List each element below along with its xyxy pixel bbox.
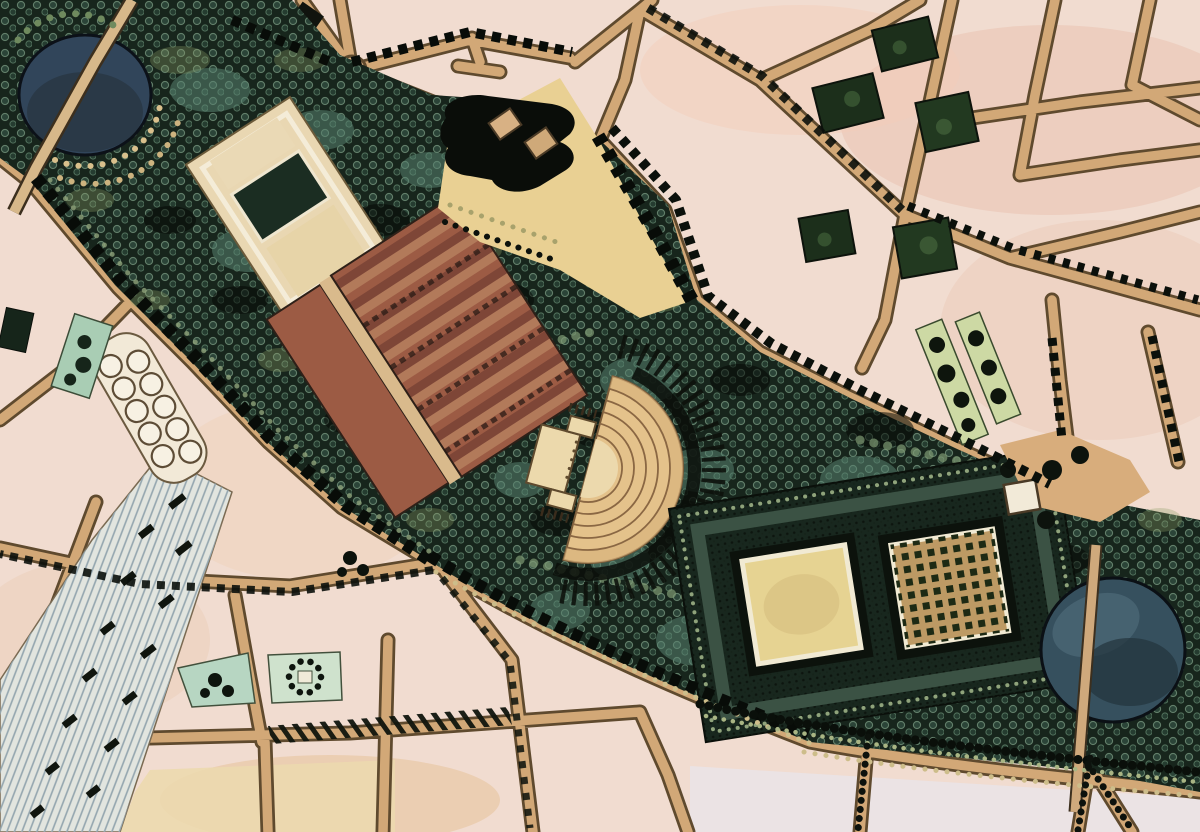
yellow-city-block [120, 760, 395, 832]
masterplan-photo [0, 0, 1200, 832]
bosquet-tree-grid [890, 529, 1009, 648]
white-pavilion [1004, 479, 1041, 514]
parcel-pavilion [298, 671, 312, 683]
masterplan-drawing [0, 0, 1200, 832]
basin-depth [1082, 638, 1178, 706]
